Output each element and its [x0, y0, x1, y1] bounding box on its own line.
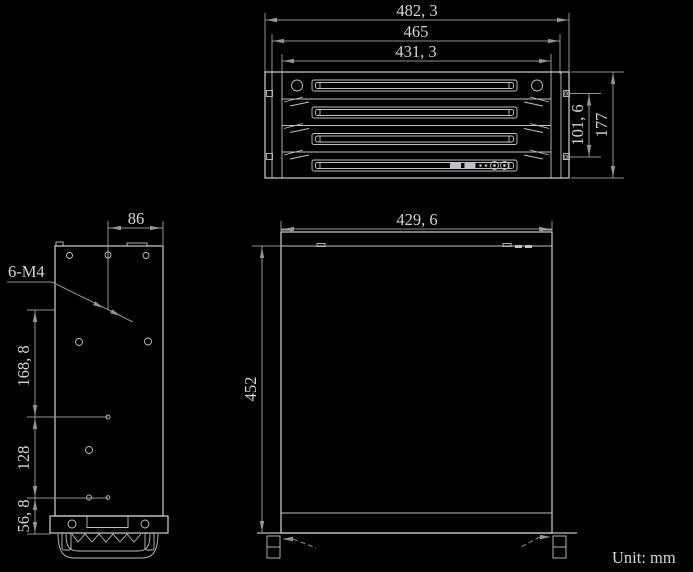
front-view: 482, 3 465 431, 3	[265, 1, 624, 178]
dim-label-482-3: 482, 3	[396, 1, 437, 20]
dim-label-431-3: 431, 3	[395, 42, 436, 61]
drive-bay-3	[312, 134, 517, 145]
dim-label-465: 465	[404, 22, 429, 41]
dim-label-177: 177	[592, 113, 611, 138]
dim-label-452: 452	[241, 377, 260, 402]
led-indicator-icon	[485, 164, 488, 167]
dim-front-mid-width: 465	[272, 22, 560, 43]
dim-top-body-width: 429, 6	[281, 210, 552, 231]
m4-mounting-holes	[67, 252, 152, 500]
callout-6-m4: 6-M4	[7, 262, 133, 322]
drive-bay-4	[312, 160, 517, 171]
side-bottom-bracket	[50, 516, 168, 533]
drive-bay-2	[312, 107, 517, 118]
drive-bay-dividers	[282, 97, 551, 159]
dim-top-depth: 452	[241, 246, 281, 533]
dim-front-overall-width: 482, 3	[265, 1, 569, 22]
dim-label-128: 128	[14, 446, 33, 471]
thumbscrew-left	[292, 80, 303, 91]
dim-label-86: 86	[128, 209, 145, 228]
thumbscrew-right	[532, 80, 543, 91]
dim-label-168-8: 168, 8	[14, 345, 33, 386]
side-panel-outline	[55, 242, 163, 516]
dim-front-body-width: 431, 3	[282, 42, 551, 63]
rack-ear-slots	[267, 91, 570, 160]
side-handle	[58, 533, 158, 558]
top-view: 429, 6	[241, 210, 577, 558]
led-indicator-icon	[479, 164, 482, 167]
dim-label-6-m4: 6-M4	[8, 262, 45, 281]
usb-port-icon	[465, 163, 476, 169]
dim-label-101-6: 101, 6	[568, 104, 587, 145]
drive-bay-1	[292, 80, 543, 91]
dimension-drawing: 482, 3 465 431, 3	[0, 0, 693, 572]
dim-side-hole-offset: 86	[108, 209, 163, 310]
top-front-handles	[267, 535, 566, 558]
unit-note: Unit: mm	[612, 548, 676, 567]
side-chain-dimensions: 168, 8 128 56, 8	[14, 310, 108, 534]
dim-label-429-6: 429, 6	[396, 210, 437, 229]
usb-port-icon	[450, 163, 461, 169]
dim-label-56-8: 56, 8	[14, 500, 33, 533]
top-body-outline	[257, 230, 577, 533]
side-view: 86 6-M4	[7, 209, 168, 558]
